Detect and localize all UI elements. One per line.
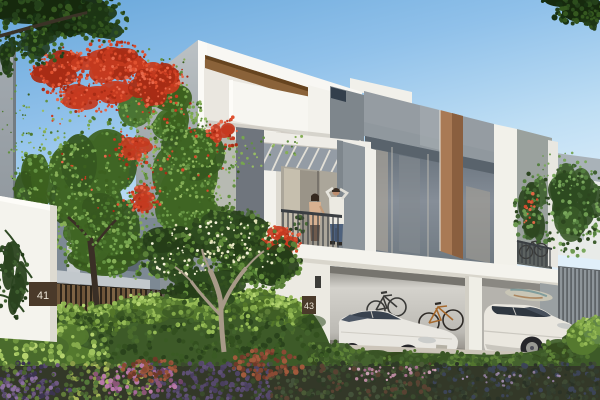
svg-text:43: 43 xyxy=(304,301,314,311)
